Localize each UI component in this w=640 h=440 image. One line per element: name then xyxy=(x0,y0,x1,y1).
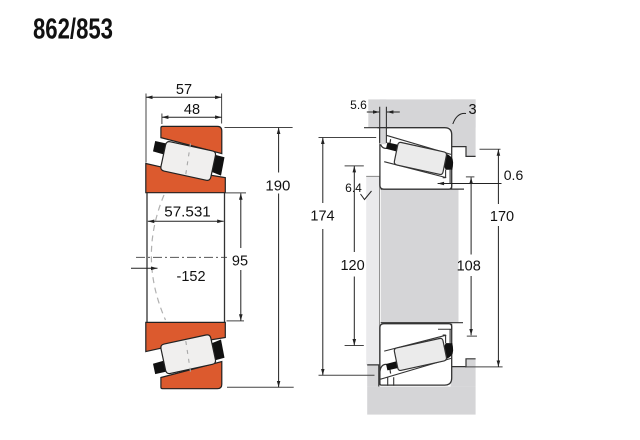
svg-text:3: 3 xyxy=(468,102,476,118)
svg-text:108: 108 xyxy=(457,258,481,274)
svg-text:174: 174 xyxy=(310,209,334,225)
svg-text:57.531: 57.531 xyxy=(164,204,210,221)
svg-text:95: 95 xyxy=(232,253,248,269)
svg-text:862/853: 862/853 xyxy=(33,14,113,46)
svg-text:57: 57 xyxy=(176,82,192,98)
svg-text:6.4: 6.4 xyxy=(345,181,362,195)
svg-text:-152: -152 xyxy=(176,269,205,285)
svg-text:48: 48 xyxy=(184,102,200,118)
svg-text:0.6: 0.6 xyxy=(504,167,524,183)
svg-text:120: 120 xyxy=(340,258,364,274)
svg-text:190: 190 xyxy=(265,178,290,195)
svg-text:5.6: 5.6 xyxy=(350,98,367,112)
svg-text:170: 170 xyxy=(490,209,514,225)
